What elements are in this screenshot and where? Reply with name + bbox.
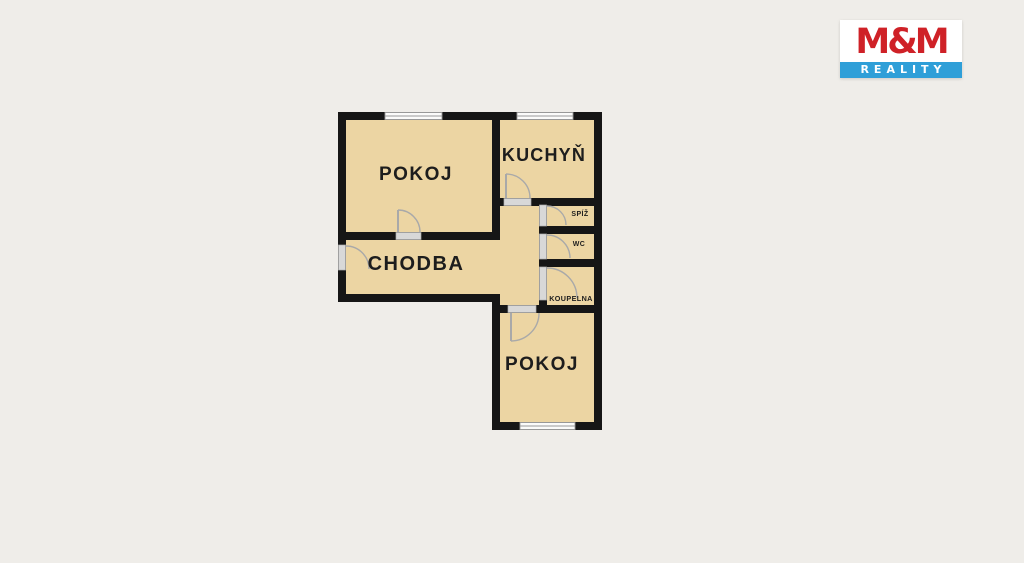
- room-label-chodba: CHODBA: [368, 253, 465, 275]
- logo-mm-text: M&M: [840, 20, 962, 62]
- wall-pokoj1-kuchyn: [492, 112, 500, 240]
- page: POKOJ KUCHYŇ CHODBA SPÍŽ WC KOUPELNA POK…: [0, 0, 1024, 563]
- agency-logo: M&M REALITY: [840, 20, 962, 78]
- room-label-kuchyn: KUCHYŇ: [502, 144, 586, 165]
- logo-reality-text: REALITY: [840, 62, 962, 78]
- window-kuchyn: [517, 113, 573, 120]
- window-pokoj-2: [520, 423, 575, 430]
- window-pokoj-1: [385, 113, 442, 120]
- room-label-wc: WC: [573, 241, 585, 248]
- room-label-koupelna: KOUPELNA: [549, 294, 593, 303]
- wall-right: [594, 112, 602, 430]
- room-label-pokoj-1: POKOJ: [379, 164, 453, 185]
- room-label-spiz: SPÍŽ: [571, 209, 588, 218]
- floor-plan: POKOJ KUCHYŇ CHODBA SPÍŽ WC KOUPELNA POK…: [0, 0, 1024, 563]
- wall-pokoj2-left: [492, 294, 500, 430]
- wall-spiz-wc: [539, 226, 602, 234]
- wall-chodba-bottom: [338, 294, 500, 302]
- room-label-pokoj-2: POKOJ: [505, 354, 579, 375]
- wall-left: [338, 112, 346, 302]
- wall-wc-koupelna: [539, 259, 602, 267]
